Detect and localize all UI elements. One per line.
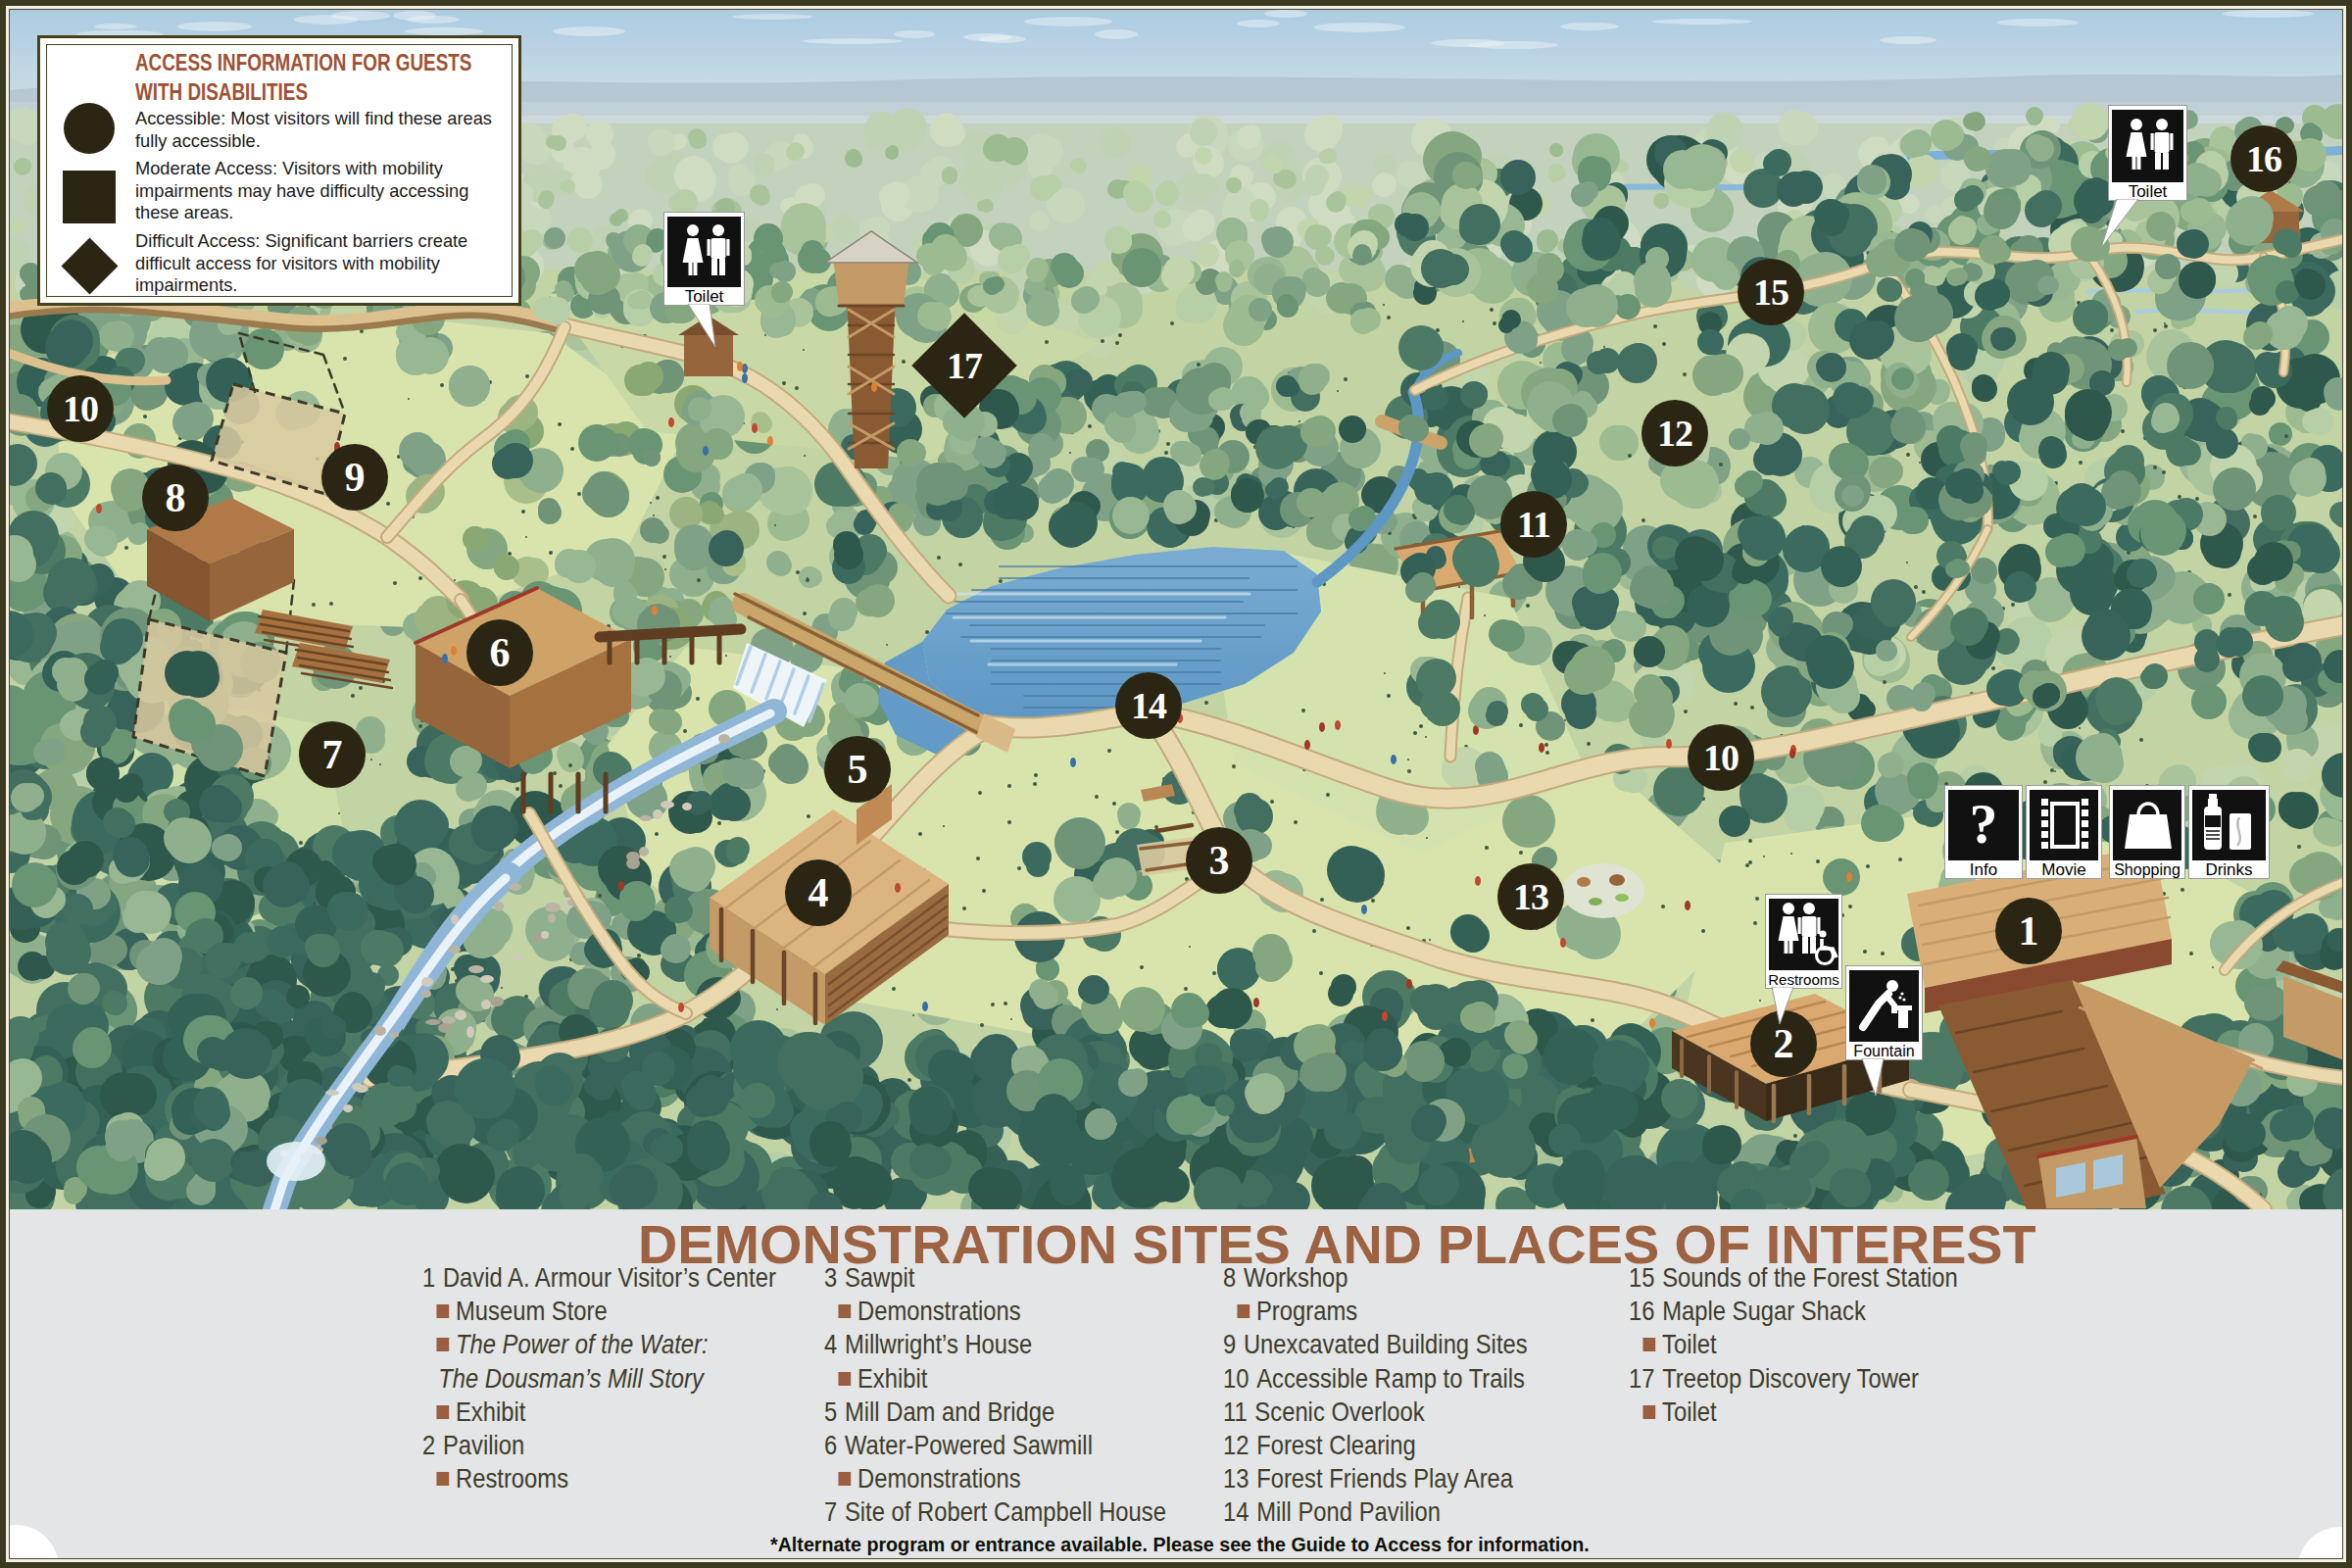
svg-text:?: ?: [1970, 792, 1998, 856]
